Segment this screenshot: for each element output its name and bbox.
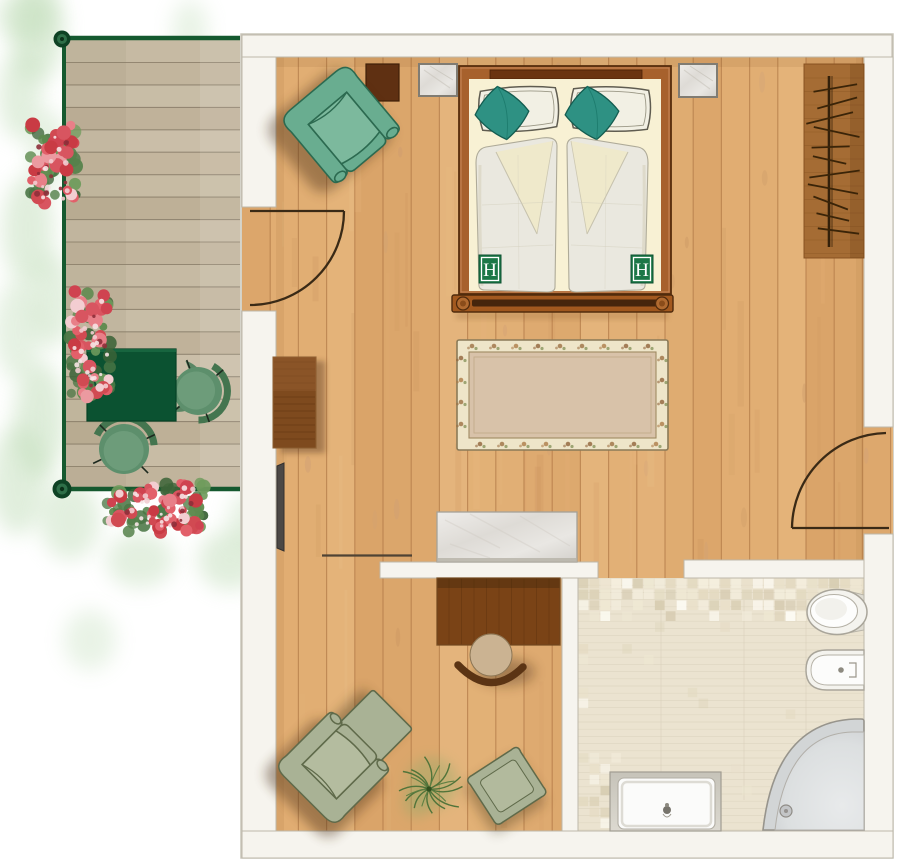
svg-text:H: H xyxy=(635,260,649,281)
svg-text:H: H xyxy=(483,260,497,281)
